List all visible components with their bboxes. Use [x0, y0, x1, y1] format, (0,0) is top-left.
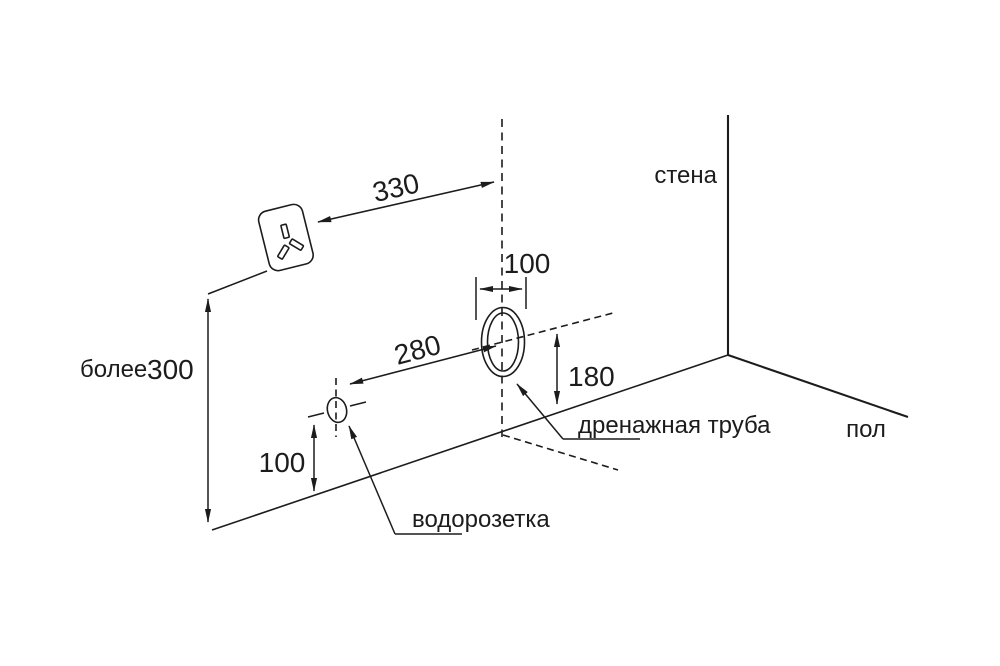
wall-label: стена: [654, 162, 717, 189]
installation-diagram: 330 100 280 180 100 более 300 стена пол …: [0, 0, 1000, 666]
drain-pipe-callout: дренажная труба: [517, 384, 771, 439]
dimension-280-value: 280: [391, 329, 444, 371]
dimension-100-pipe-width: 100: [476, 248, 550, 320]
dimension-330-value: 330: [370, 167, 422, 208]
outlet-left-slot: [278, 245, 290, 259]
dimension-300-value: 300: [147, 354, 194, 385]
drain-pipe-leader-line: [517, 384, 563, 439]
dimension-100-socket-height: 100: [259, 425, 314, 491]
water-socket-icon: [308, 378, 366, 437]
water-socket-callout: водорозетка: [349, 426, 550, 534]
dimension-300-qualifier: более: [80, 356, 147, 383]
socket-crosshair-dash-left: [308, 413, 324, 417]
outlet-right-slot: [289, 239, 303, 251]
water-socket-leader-line: [349, 426, 395, 534]
pipe-floor-projection-dashed-line: [503, 435, 618, 470]
dimension-100-pipe-width-value: 100: [504, 248, 551, 279]
dimension-180-value: 180: [568, 361, 615, 392]
dimension-more-than-300: более 300: [80, 271, 267, 522]
outlet-top-slot: [281, 224, 290, 238]
extension-line-outlet: [208, 271, 267, 294]
dimension-280: 280: [350, 329, 496, 384]
floor-label: пол: [846, 416, 886, 443]
dimension-100-socket-height-value: 100: [259, 447, 306, 478]
water-socket-label: водорозетка: [412, 506, 550, 533]
socket-crosshair-dash-right: [350, 402, 366, 406]
dimension-180: 180: [557, 334, 615, 404]
drain-pipe-icon: [482, 308, 525, 377]
drain-pipe-label: дренажная труба: [578, 412, 771, 439]
dimension-330: 330: [318, 167, 494, 222]
floor-edge-right: [728, 355, 908, 417]
floor-edge-left: [212, 355, 728, 530]
power-outlet-icon: [257, 202, 315, 272]
diagram-canvas: 330 100 280 180 100 более 300 стена пол …: [0, 0, 1000, 666]
